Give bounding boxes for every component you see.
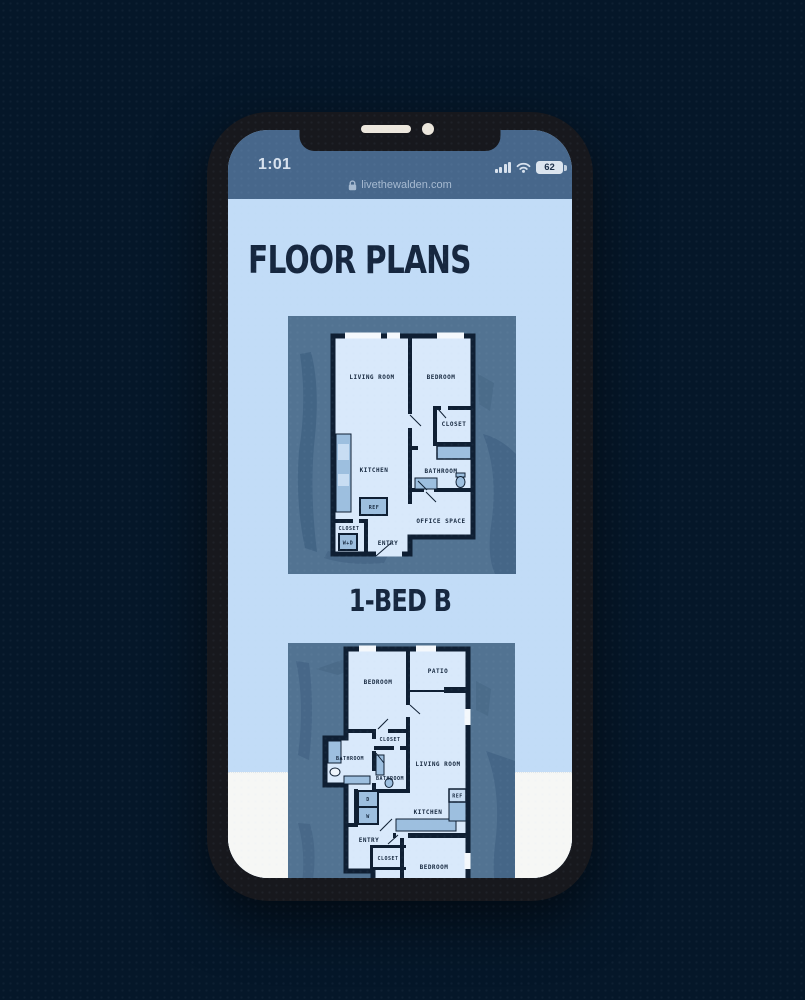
- url-bar[interactable]: livethewalden.com: [228, 179, 572, 191]
- room-label: W: [366, 814, 370, 820]
- page-title: FLOOR PLANS: [248, 241, 534, 279]
- url-text: livethewalden.com: [361, 179, 452, 191]
- lock-icon: [348, 180, 357, 191]
- status-time: 1:01: [258, 156, 291, 174]
- room-label: ENTRY: [378, 540, 399, 547]
- room-label: BEDROOM: [420, 864, 449, 871]
- room-label: BATHROOM: [336, 756, 364, 762]
- front-camera-dot: [422, 123, 434, 135]
- room-label: BEDROOM: [364, 679, 393, 686]
- floorplan-b-image[interactable]: BEDROOM PATIO CLOSET BATHROOM LIVING ROO…: [288, 643, 515, 878]
- battery-icon: 62: [536, 161, 563, 174]
- room-label: CLOSET: [338, 526, 359, 532]
- room-label: CLOSET: [377, 856, 398, 862]
- phone-mockup: 1:01 62 livethewalden.com: [207, 112, 593, 901]
- status-icons: 62: [495, 161, 564, 174]
- room-label: LIVING ROOM: [415, 761, 460, 768]
- webpage-content: FLOOR PLANS: [228, 199, 572, 878]
- cellular-signal-icon: [495, 162, 512, 173]
- room-label: BATHROOM: [425, 468, 458, 475]
- speaker-grille: [361, 125, 411, 133]
- section-label: 1-BED B: [228, 587, 572, 617]
- room-label: BATHROOM: [376, 776, 404, 782]
- wifi-icon: [516, 162, 531, 173]
- room-label: KITCHEN: [360, 467, 389, 474]
- floorplan-a-image[interactable]: LIVING ROOM BEDROOM CLOSET KITCHEN BATHR…: [288, 316, 516, 574]
- room-label: ENTRY: [359, 837, 380, 844]
- room-label: REF: [452, 794, 463, 800]
- room-label: REF: [369, 505, 380, 511]
- room-label: PATIO: [428, 668, 449, 675]
- room-label: CLOSET: [379, 737, 400, 743]
- battery-percent: 62: [544, 162, 555, 173]
- room-label: CLOSET: [442, 421, 467, 428]
- room-label: KITCHEN: [414, 809, 443, 816]
- room-label: W+D: [343, 541, 354, 547]
- room-label: LIVING ROOM: [349, 374, 394, 381]
- phone-screen: 1:01 62 livethewalden.com: [228, 130, 572, 878]
- notch: [300, 130, 501, 151]
- room-label: D: [366, 797, 370, 803]
- room-label: OFFICE SPACE: [416, 518, 465, 525]
- room-label: BEDROOM: [427, 374, 456, 381]
